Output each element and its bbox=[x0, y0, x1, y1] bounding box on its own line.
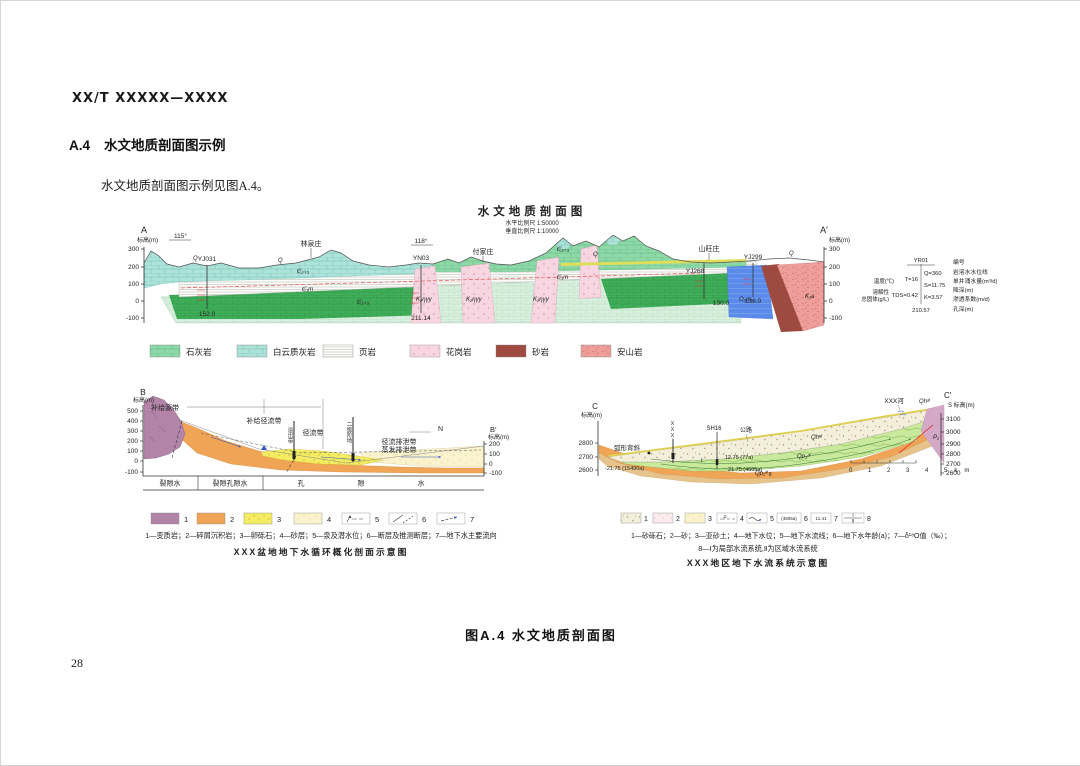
strip-fissure-water: 裂隙水 bbox=[160, 479, 181, 488]
tick: 0 bbox=[829, 298, 833, 305]
profile-a-legend: 石灰岩 白云质灰岩 页岩 花岗岩 砂岩 安山岩 bbox=[150, 345, 643, 357]
tick: 100 bbox=[127, 448, 138, 455]
tick: 0 bbox=[135, 298, 139, 305]
legend-label-dolomite: 白云质灰岩 bbox=[273, 347, 316, 357]
strip-pore-water-3: 水 bbox=[418, 479, 425, 488]
profile-a-title: 水文地质剖面图 bbox=[478, 204, 587, 218]
tick: 300 bbox=[128, 246, 139, 253]
profile-a-right-axis: A′ 标高(m) 300 200 100 0 -100 bbox=[820, 225, 850, 323]
unit-eps23: ∈₂₊₃ bbox=[556, 246, 570, 253]
unit-q: Q bbox=[278, 258, 283, 264]
legend-label-granite: 花岗岩 bbox=[446, 347, 472, 357]
legend-num: 8 bbox=[867, 516, 871, 523]
tick: 400 bbox=[127, 418, 138, 425]
well-2-screen bbox=[352, 453, 355, 461]
unit-q: Q bbox=[193, 256, 198, 262]
tick: 0 bbox=[489, 461, 493, 468]
borehole-yj268-depth: 130.0 bbox=[713, 300, 730, 307]
tick: 200 bbox=[127, 438, 138, 445]
endpoint-a-prime: A′ bbox=[820, 225, 828, 235]
legend-swatch-andesite bbox=[581, 345, 611, 357]
unit-blue: O₂m bbox=[739, 297, 751, 303]
anticline-label: 弧形背斜 bbox=[614, 443, 641, 452]
elev-label-left: 标高(m) bbox=[581, 411, 602, 419]
legend-num: 5 bbox=[375, 515, 379, 524]
profile-b-bottom-strip: 裂隙水 裂隙孔隙水 孔 隙 水 bbox=[143, 476, 484, 490]
tick: 100 bbox=[128, 281, 139, 288]
key-temp-value: T=16 bbox=[905, 277, 918, 283]
key-label-yield: 单井涌水量(m³/d) bbox=[953, 277, 998, 285]
profile-a: 水文地质剖面图 水平比例尺 1:50000 垂直比例尺 1:10000 bbox=[126, 204, 998, 357]
document-page: XX/T XXXXX—XXXX A.4水文地质剖面图示例 水文地质剖面图示例见图… bbox=[0, 0, 1080, 766]
zone-runoff-discharge: 径流排泄带 bbox=[382, 437, 417, 446]
flow-system-2-label: Ⅱ bbox=[769, 472, 772, 478]
unit-qh-label-2: Qhᵃˡ bbox=[919, 398, 931, 405]
bearing-118: 118° bbox=[415, 237, 428, 245]
legend-swatch-dolomite bbox=[237, 345, 267, 357]
borehole-sh16-screen bbox=[716, 459, 719, 465]
endpoint-a: A bbox=[141, 225, 147, 235]
age-annotation-3: -21.75 (15490a) bbox=[605, 466, 644, 472]
unit-eps23: ∈₂₊₃ bbox=[296, 268, 310, 275]
tick: 3100 bbox=[946, 416, 961, 423]
tick: -100 bbox=[126, 315, 139, 322]
village-fujiazhuang: 付家庄 bbox=[473, 247, 494, 256]
delta18o-symbol-text: 11.41 bbox=[816, 516, 827, 521]
legend-swatch-sand bbox=[653, 513, 673, 523]
north-label: N bbox=[438, 426, 443, 433]
profile-b-legend: 1 2 3 4 5 6 7 bbox=[151, 513, 474, 524]
page-number: 28 bbox=[71, 656, 83, 671]
flow-system-1-symbol: Ⅰ bbox=[852, 513, 853, 518]
profile-a-scale-h: 水平比例尺 1:50000 bbox=[505, 219, 559, 227]
tick: 300 bbox=[127, 428, 138, 435]
strip-fissure-pore-water: 裂隙孔隙水 bbox=[213, 479, 248, 488]
legend-swatch-sand bbox=[294, 513, 322, 524]
tick: 300 bbox=[829, 246, 840, 253]
key-q-value: Q=360 bbox=[924, 271, 942, 277]
legend-swatch-granite bbox=[410, 345, 440, 357]
unit-qh-label-1: Qhᵃˡ bbox=[811, 434, 823, 441]
village-linquanzhuang: 林泉庄 bbox=[301, 239, 322, 248]
tick: 200 bbox=[128, 264, 139, 271]
strip-pore-water-1: 孔 bbox=[298, 480, 305, 488]
sand-layer-unit bbox=[359, 446, 484, 467]
tick: -100 bbox=[125, 469, 138, 476]
key-label-id: 编号 bbox=[953, 258, 965, 266]
zone-evaporation-discharge: 蒸发排泄带 bbox=[382, 445, 417, 454]
zone-recharge-source: 补给源带 bbox=[151, 403, 179, 412]
tick: 500 bbox=[127, 408, 138, 415]
elev-label: 标高(m) bbox=[488, 433, 509, 441]
well-xxx-screen bbox=[672, 453, 675, 459]
tick: 200 bbox=[489, 441, 500, 448]
key-tds-label-1: 溶解性 bbox=[872, 288, 889, 296]
profile-a-key: YR01 温度(℃) T=16 溶解性 总固体(g/L) TDS=0.42 Q=… bbox=[861, 258, 997, 314]
granite-dike-2 bbox=[461, 263, 495, 323]
profile-b-title: XXX盆地地下水循环概化剖面示意图 bbox=[234, 546, 409, 557]
borehole-yj031-depth: 152.0 bbox=[199, 311, 216, 318]
profile-b: B 标高(m) 500 400 300 200 100 0 -100 B′ 标高… bbox=[125, 387, 509, 557]
legend-swatch-silty-sand bbox=[685, 513, 705, 523]
elev-label-left: 标高(m) bbox=[137, 236, 158, 244]
legend-num: 6 bbox=[804, 516, 808, 523]
legend-num: 4 bbox=[327, 515, 331, 524]
road-label: 公路 bbox=[740, 426, 752, 434]
endpoint-c: C bbox=[592, 402, 598, 411]
bearing-115: 115° bbox=[174, 232, 187, 240]
legend-label-shale: 页岩 bbox=[359, 347, 377, 357]
unit-p1-label: P₁ bbox=[933, 435, 939, 441]
legend-swatch-water-level bbox=[717, 513, 737, 523]
legend-label-limestone: 石灰岩 bbox=[186, 347, 212, 357]
age-symbol-text: (4605a) bbox=[781, 516, 797, 521]
age-annotation-1: 12.75 (77a) bbox=[725, 455, 753, 461]
legend-swatch-clastic bbox=[197, 513, 225, 524]
legend-num: 7 bbox=[470, 515, 474, 524]
unit-andesite: K₁a bbox=[805, 294, 815, 300]
key-borehole-id: YR01 bbox=[914, 258, 929, 264]
endpoint-c-prime: C′ bbox=[944, 391, 952, 400]
age-annotation-2: 21.75 (4605a) bbox=[728, 467, 762, 473]
legend-swatch-limestone bbox=[150, 345, 180, 357]
tick: 2700 bbox=[579, 454, 594, 461]
elev-label-right: 标高(m) bbox=[829, 236, 850, 244]
legend-swatch-metamorphic bbox=[151, 513, 179, 524]
profile-b-legend-caption: 1—变质岩；2—碎屑沉积岩；3—卵砾石；4—砂层；5—泉及潜水位；6—断层及推测… bbox=[145, 531, 496, 540]
river-label: XXX河 bbox=[884, 397, 904, 405]
legend-swatch-gravel bbox=[244, 513, 272, 524]
legend-num: 3 bbox=[708, 516, 712, 523]
legend-label-andesite: 安山岩 bbox=[617, 347, 643, 357]
legend-num: 5 bbox=[770, 516, 774, 523]
borehole-yj031: YJ031 bbox=[198, 256, 217, 263]
unit-q: Q bbox=[593, 252, 598, 258]
borehole-yn03-depth: 211.14 bbox=[411, 315, 431, 322]
profile-c: C 标高(m) 2800 2700 2600 C′ S 标高(m) 3100 3… bbox=[579, 391, 977, 568]
profile-c-left-axis: C 标高(m) 2800 2700 2600 bbox=[579, 402, 602, 476]
elev-label: 标高(m) bbox=[133, 396, 154, 404]
figure-a4: 水文地质剖面图 水平比例尺 1:50000 垂直比例尺 1:10000 bbox=[1, 1, 1080, 765]
unit-granite: K₂ηγy bbox=[466, 297, 483, 303]
unit-eps23: ∈₂₊₃ bbox=[356, 299, 370, 306]
legend-num: 7 bbox=[834, 516, 838, 523]
unit-eps1m: ∈₁m bbox=[301, 286, 313, 293]
legend-swatch-fault bbox=[389, 513, 417, 524]
legend-num: 1 bbox=[644, 516, 648, 523]
legend-num: 4 bbox=[740, 516, 744, 523]
borehole-yj299: YJ299 bbox=[744, 254, 763, 261]
borehole-yn03: YN03 bbox=[413, 255, 430, 262]
unit-granite: K₂ηγy bbox=[416, 297, 433, 303]
tick: 200 bbox=[829, 264, 840, 271]
legend-num: 3 bbox=[277, 515, 281, 524]
borehole-sh16-label: SH16 bbox=[706, 426, 722, 432]
legend-num: 1 bbox=[184, 515, 188, 524]
legend-swatch-sandy-gravel bbox=[621, 513, 641, 523]
unit-qp3-label: Qp₃ᵃˡ bbox=[797, 453, 812, 460]
scalebar-label: 0 1 2 3 4 5km bbox=[849, 468, 976, 474]
tick: -100 bbox=[489, 470, 502, 477]
tick: -100 bbox=[829, 315, 842, 322]
profile-c-legend-caption-2: 8—Ⅰ为局部水流系统,Ⅱ为区域水流系统 bbox=[698, 544, 817, 553]
key-label-permeability: 渗透系数(m/d) bbox=[953, 295, 990, 303]
spring-symbol bbox=[261, 445, 267, 450]
legend-num: 6 bbox=[422, 515, 426, 524]
zone-runoff: 径流带 bbox=[303, 428, 324, 437]
tick: 0 bbox=[134, 458, 138, 465]
legend-num: 2 bbox=[676, 516, 680, 523]
elev-label-right: S 标高(m) bbox=[948, 401, 975, 409]
key-label-water-level: 岩溶水水位线 bbox=[953, 268, 988, 276]
key-label-drawdown: 降深(m) bbox=[953, 286, 973, 294]
tick: 2600 bbox=[579, 467, 594, 474]
village-shanwangzhuang: 山旺庄 bbox=[699, 244, 720, 253]
legend-swatch-spring bbox=[342, 513, 370, 524]
legend-num: 2 bbox=[230, 515, 234, 524]
key-label-hole-depth: 孔深(m) bbox=[953, 305, 973, 313]
profile-c-legend-caption-1: 1—砂砾石；2—砂；3—亚砂土；4—地下水位；5—地下水流线；6—地下水年龄(a… bbox=[631, 531, 951, 540]
granite-dike-4 bbox=[579, 245, 601, 299]
figure-caption: 图A.4 水文地质剖面图 bbox=[1, 625, 1080, 644]
well-1-screen bbox=[293, 451, 296, 459]
key-k-value: K=3.57 bbox=[924, 295, 943, 301]
borehole-yj268: YJ268 bbox=[686, 268, 705, 275]
endpoint-b-prime: B′ bbox=[490, 425, 497, 434]
legend-swatch-shale bbox=[323, 345, 353, 357]
tick: 2900 bbox=[946, 441, 961, 448]
anticline-symbol bbox=[648, 452, 651, 455]
profile-c-right-axis: C′ S 标高(m) 3100 3000 2900 2800 2700 2600 bbox=[941, 391, 975, 477]
endpoint-b: B bbox=[140, 387, 146, 397]
unit-q: Q bbox=[789, 251, 794, 257]
profile-a-scale-v: 垂直比例尺 1:10000 bbox=[505, 227, 559, 235]
profile-c-legend: 1 2 3 4 5 (4605a) 6 11.41 7 Ⅰ bbox=[621, 513, 871, 524]
strip-pore-water-2: 隙 bbox=[358, 479, 365, 488]
tick: 2800 bbox=[946, 451, 961, 458]
well-2-vertical-label: 二级阶地 bbox=[345, 421, 351, 443]
key-s-value: S=11.75 bbox=[924, 283, 945, 289]
tick: 2700 bbox=[946, 461, 961, 468]
key-tds-value: TDS=0.42 bbox=[892, 293, 918, 299]
tick: 100 bbox=[489, 451, 500, 458]
profile-b-right-axis: B′ 标高(m) 200 100 0 -100 bbox=[484, 425, 509, 477]
legend-swatch-sandstone bbox=[496, 345, 526, 357]
profile-c-title: XXX地区地下水流系统示意图 bbox=[687, 557, 829, 568]
legend-label-sandstone: 砂岩 bbox=[532, 347, 550, 357]
key-temp-label: 温度(℃) bbox=[874, 277, 894, 285]
tick: 3000 bbox=[946, 429, 961, 436]
tick: 100 bbox=[829, 281, 840, 288]
unit-granite: K₂ηγy bbox=[533, 297, 550, 303]
zone-recharge-runoff: 补给径流带 bbox=[247, 416, 282, 425]
xxx-vertical-label: XXX bbox=[669, 421, 675, 439]
flow-system-2-symbol: Ⅱ bbox=[852, 519, 854, 524]
key-depth-value: 210.57 bbox=[912, 308, 930, 314]
unit-eps1m: ∈₁m bbox=[556, 274, 568, 281]
well-1-vertical-label: 溢出带 bbox=[286, 427, 292, 444]
tick: 2800 bbox=[579, 440, 594, 447]
key-tds-label-2: 总固体(g/L) bbox=[861, 295, 889, 303]
